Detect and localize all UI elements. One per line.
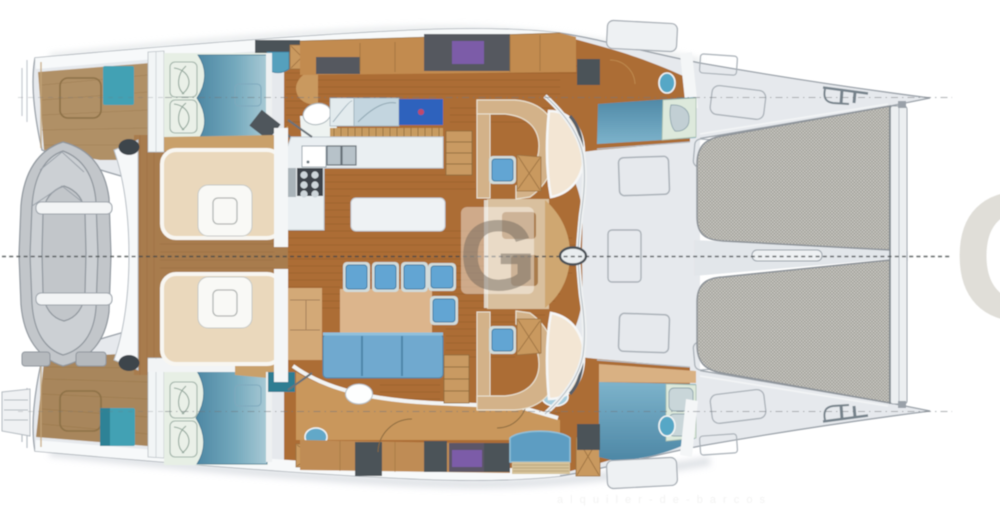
- svg-text:a l q u i l e r - d e - b a r: a l q u i l e r - d e - b a r c o s: [557, 494, 767, 506]
- svg-text:G: G: [952, 154, 1000, 360]
- svg-text:G: G: [459, 200, 537, 312]
